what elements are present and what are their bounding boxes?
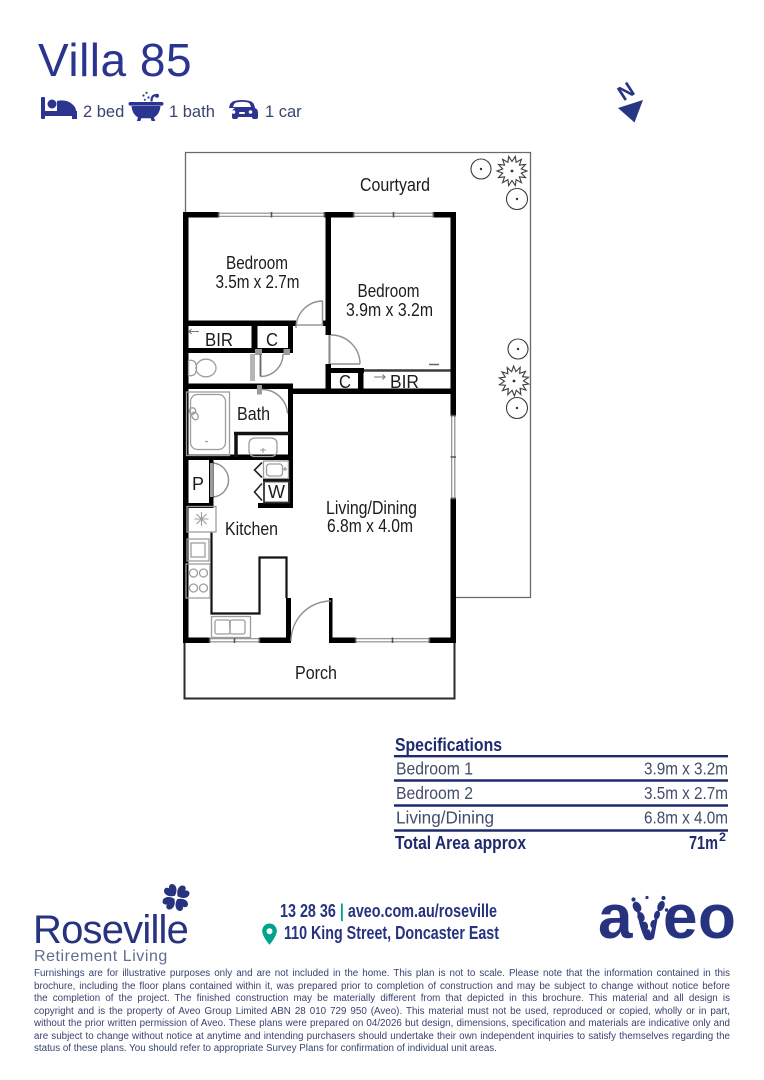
svg-text:Roseville: Roseville [33,908,188,952]
svg-text:13 28 36 | aveo.com.au/rosevil: 13 28 36 | aveo.com.au/roseville [280,901,497,921]
svg-text:a: a [598,883,633,952]
svg-text:110 King Street, Doncaster Eas: 110 King Street, Doncaster East [284,923,499,943]
svg-text:eo: eo [663,883,736,952]
svg-text:Retirement Living: Retirement Living [34,948,168,965]
